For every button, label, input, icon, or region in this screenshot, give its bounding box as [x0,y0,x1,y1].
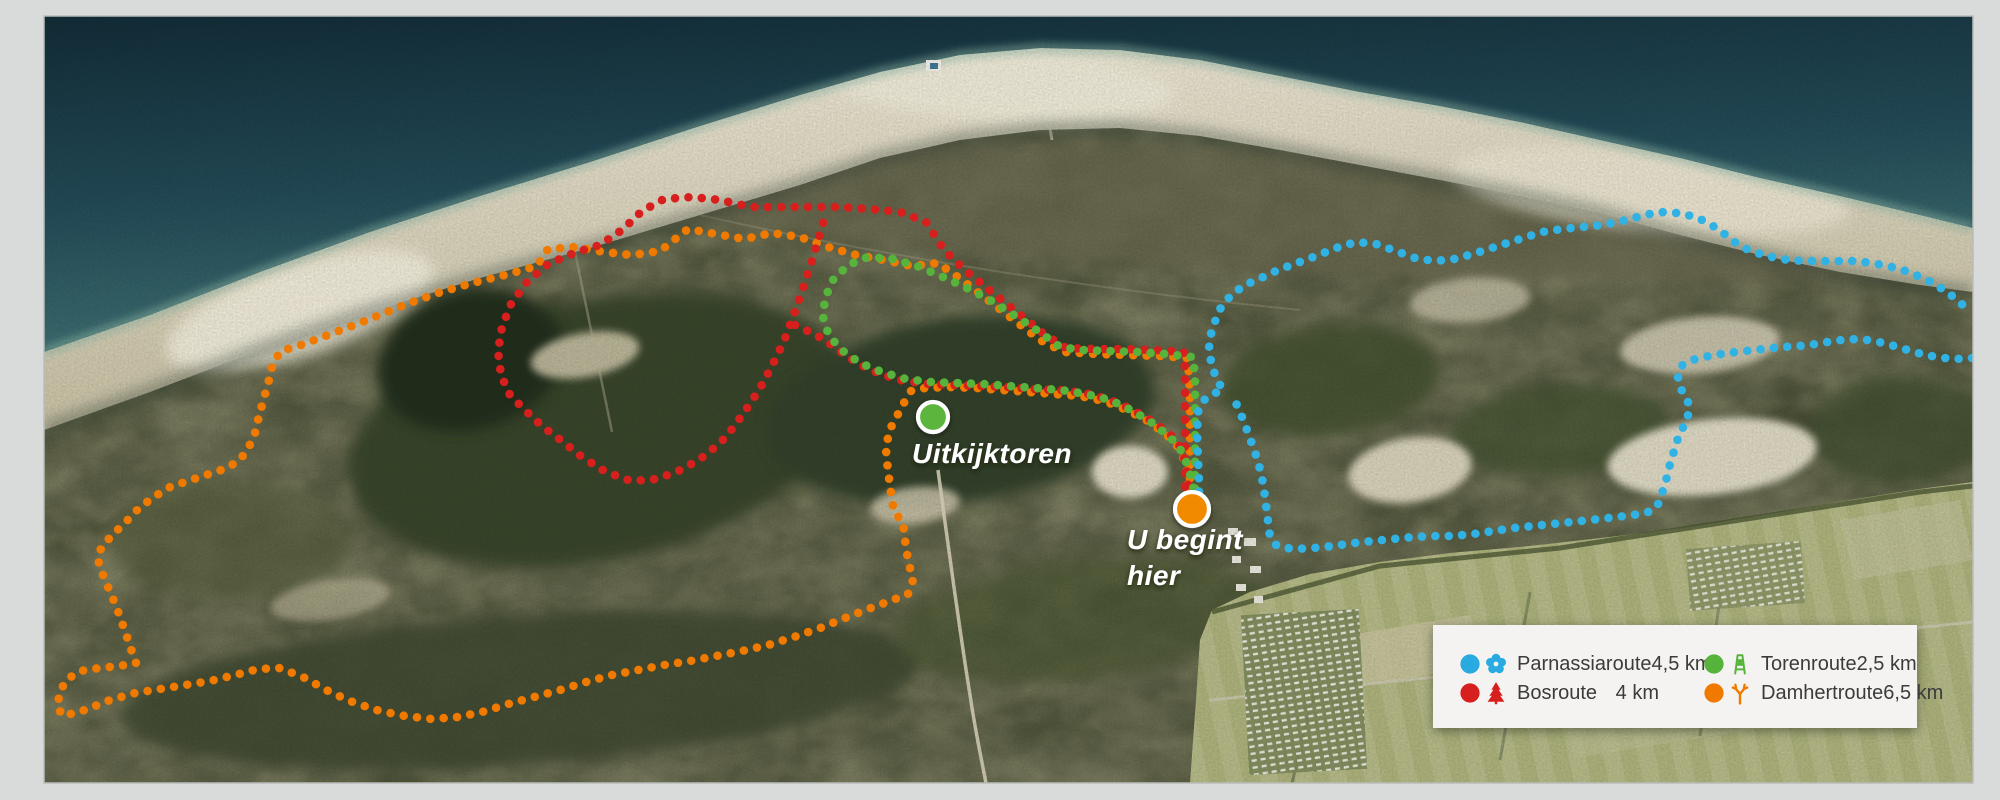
start-label-line1: U begint [1127,524,1244,555]
legend-column-2: Torenroute 2,5 km Damhertroute 6,5 km [1703,651,1903,728]
deer-antler-icon [1728,681,1752,705]
tower-icon [1728,652,1752,676]
flower-icon [1484,652,1508,676]
route-dot-swatch [1703,682,1725,704]
tree-icon [1484,681,1508,705]
route-name: Damhertroute [1761,682,1883,705]
route-dot-swatch [1459,682,1481,704]
legend: Parnassiaroute 4,5 km Bosroute 4 km [1433,625,1917,728]
start-label-line2: hier [1127,560,1182,591]
route-name: Parnassiaroute [1517,653,1652,676]
route-distance: 4 km [1616,682,1659,705]
trail-map-sign: Uitkijktoren U begint hier Parnassiarout… [0,0,2000,800]
legend-item-damhertroute: Damhertroute 6,5 km [1703,680,1903,706]
legend-item-bosroute: Bosroute 4 km [1459,680,1659,706]
route-name: Bosroute [1517,682,1616,705]
route-distance: 2,5 km [1857,653,1917,676]
route-distance: 6,5 km [1883,682,1943,705]
uitkijktoren-label: Uitkijktoren [912,438,1072,469]
route-dot-swatch [1459,653,1481,675]
start-marker [1175,492,1209,526]
uitkijktoren-marker [918,402,948,432]
legend-item-torenroute: Torenroute 2,5 km [1703,651,1903,677]
route-dot-swatch [1703,653,1725,675]
route-name: Torenroute [1761,653,1857,676]
legend-column-1: Parnassiaroute 4,5 km Bosroute 4 km [1459,651,1659,728]
legend-item-parnassiaroute: Parnassiaroute 4,5 km [1459,651,1659,677]
